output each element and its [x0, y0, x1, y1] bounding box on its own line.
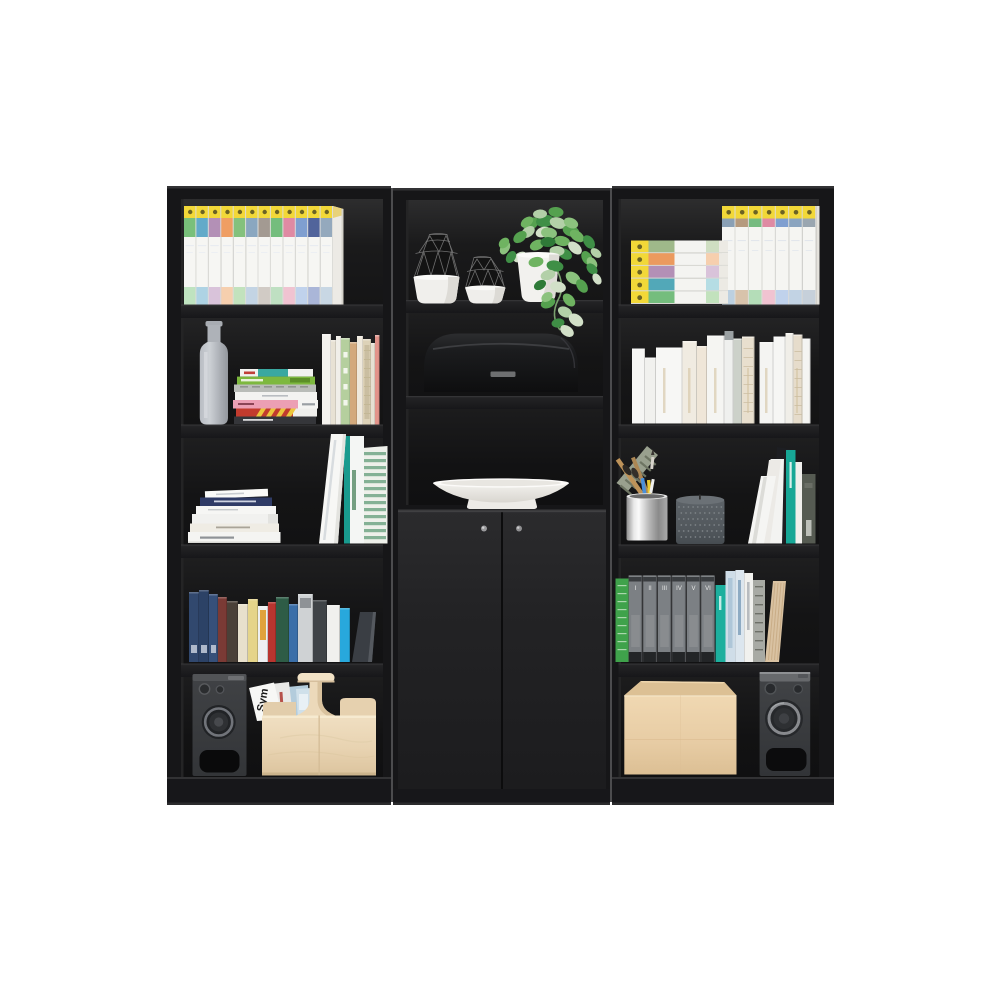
- svg-text:V: V: [691, 586, 695, 592]
- svg-text:II: II: [648, 586, 652, 592]
- svg-text:IV: IV: [676, 586, 682, 592]
- svg-text:III: III: [662, 586, 667, 592]
- svg-text:VI: VI: [705, 586, 711, 592]
